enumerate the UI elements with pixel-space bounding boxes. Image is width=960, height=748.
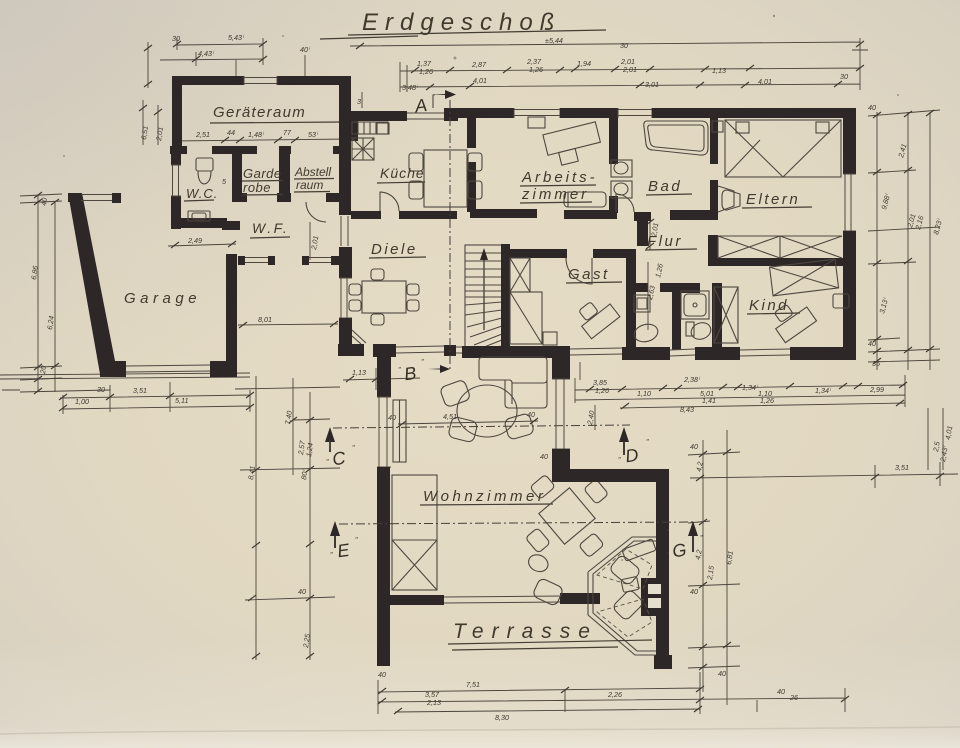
- svg-text:40: 40: [378, 670, 386, 679]
- svg-text:1,13: 1,13: [352, 368, 366, 377]
- svg-text:Geräteraum: Geräteraum: [213, 104, 306, 121]
- svg-text:1,48ⁱ: 1,48ⁱ: [248, 130, 265, 139]
- svg-text:W.F.: W.F.: [252, 220, 289, 236]
- svg-text:40: 40: [718, 669, 726, 678]
- svg-text:Bad: Bad: [648, 178, 682, 195]
- svg-text:2,49: 2,49: [187, 236, 202, 245]
- svg-text:77: 77: [283, 128, 292, 137]
- svg-text:Terrasse: Terrasse: [453, 620, 598, 643]
- svg-text:5,43ⁱ: 5,43ⁱ: [228, 33, 245, 42]
- svg-text:4,2: 4,2: [694, 461, 705, 472]
- svg-text:3,51: 3,51: [895, 463, 909, 472]
- svg-text:1,26: 1,26: [419, 67, 433, 76]
- svg-text:40: 40: [777, 687, 785, 696]
- svg-text:3,51: 3,51: [133, 386, 147, 395]
- svg-text:44: 44: [227, 128, 235, 137]
- svg-text:±5,44: ±5,44: [545, 36, 563, 45]
- svg-text:Wohnzimmer: Wohnzimmer: [423, 488, 546, 505]
- svg-text:1,34ⁱ: 1,34ⁱ: [742, 383, 759, 392]
- svg-text:1,26: 1,26: [760, 396, 774, 405]
- svg-text:A: A: [413, 95, 429, 117]
- svg-text:D: D: [624, 445, 640, 467]
- svg-text:Gast: Gast: [568, 266, 610, 283]
- svg-text:26: 26: [789, 693, 798, 702]
- svg-text:Abstell: Abstell: [294, 165, 331, 179]
- svg-text:Garage: Garage: [124, 290, 201, 307]
- svg-text:W.C.: W.C.: [186, 186, 218, 201]
- svg-text:1,26: 1,26: [595, 386, 609, 395]
- svg-text:1,94: 1,94: [577, 59, 591, 68]
- svg-text:30: 30: [172, 34, 180, 43]
- svg-text:4,2: 4,2: [693, 549, 704, 560]
- svg-text:40: 40: [39, 197, 49, 206]
- svg-text:40: 40: [690, 442, 698, 451]
- svg-text:2,99: 2,99: [869, 385, 884, 394]
- svg-text:Garde: Garde: [243, 166, 282, 181]
- svg-text:40: 40: [868, 103, 876, 112]
- svg-text:8,01: 8,01: [258, 315, 272, 324]
- svg-text:Diele: Diele: [371, 241, 418, 258]
- svg-text:40: 40: [298, 587, 306, 596]
- svg-text:1,00: 1,00: [75, 397, 89, 406]
- svg-text:raum: raum: [296, 178, 323, 192]
- svg-text:36: 36: [872, 359, 880, 368]
- svg-text:2,01: 2,01: [622, 65, 637, 74]
- svg-text:40: 40: [690, 587, 698, 596]
- svg-text:1,41: 1,41: [702, 396, 716, 405]
- svg-text:G: G: [671, 540, 688, 562]
- svg-text:2,13: 2,13: [426, 698, 441, 707]
- svg-text:1,13: 1,13: [712, 66, 726, 75]
- svg-text:1,26: 1,26: [529, 65, 543, 74]
- svg-text:2,87: 2,87: [471, 60, 487, 69]
- svg-text:Kind: Kind: [749, 297, 789, 314]
- svg-text:40: 40: [540, 452, 548, 461]
- svg-text:2,26: 2,26: [607, 690, 622, 699]
- svg-text:40: 40: [868, 339, 876, 348]
- svg-text:2,38ⁱ: 2,38ⁱ: [683, 375, 701, 384]
- svg-text:Arbeits-: Arbeits-: [521, 169, 598, 186]
- svg-text:30: 30: [620, 41, 628, 50]
- svg-text:40: 40: [527, 410, 535, 419]
- svg-text:4,51: 4,51: [443, 412, 457, 421]
- svg-text:4,43ⁱ: 4,43ⁱ: [198, 49, 215, 58]
- svg-text:3,01: 3,01: [645, 80, 659, 89]
- svg-text:3,48ⁱ: 3,48ⁱ: [402, 83, 419, 92]
- svg-text:robe: robe: [243, 180, 271, 195]
- svg-text:Eltern: Eltern: [746, 191, 800, 208]
- svg-text:zimmer: zimmer: [521, 186, 589, 203]
- svg-text:Flur: Flur: [647, 233, 683, 250]
- svg-text:30: 30: [97, 385, 105, 394]
- svg-text:7,51: 7,51: [466, 680, 480, 689]
- svg-text:3: 3: [357, 97, 361, 106]
- svg-text:1,10: 1,10: [637, 389, 651, 398]
- svg-text:Küche: Küche: [380, 165, 425, 181]
- svg-text:2,51: 2,51: [195, 130, 210, 139]
- svg-text:40: 40: [388, 413, 396, 422]
- svg-text:30: 30: [840, 72, 848, 81]
- svg-text:8,43: 8,43: [680, 405, 694, 414]
- svg-text:20: 20: [38, 365, 48, 375]
- svg-text:4,01: 4,01: [758, 77, 772, 86]
- svg-text:8,30: 8,30: [495, 713, 509, 722]
- svg-text:4,01: 4,01: [473, 76, 487, 85]
- svg-text:1,34ⁱ: 1,34ⁱ: [815, 386, 832, 395]
- svg-text:5,11: 5,11: [175, 396, 188, 405]
